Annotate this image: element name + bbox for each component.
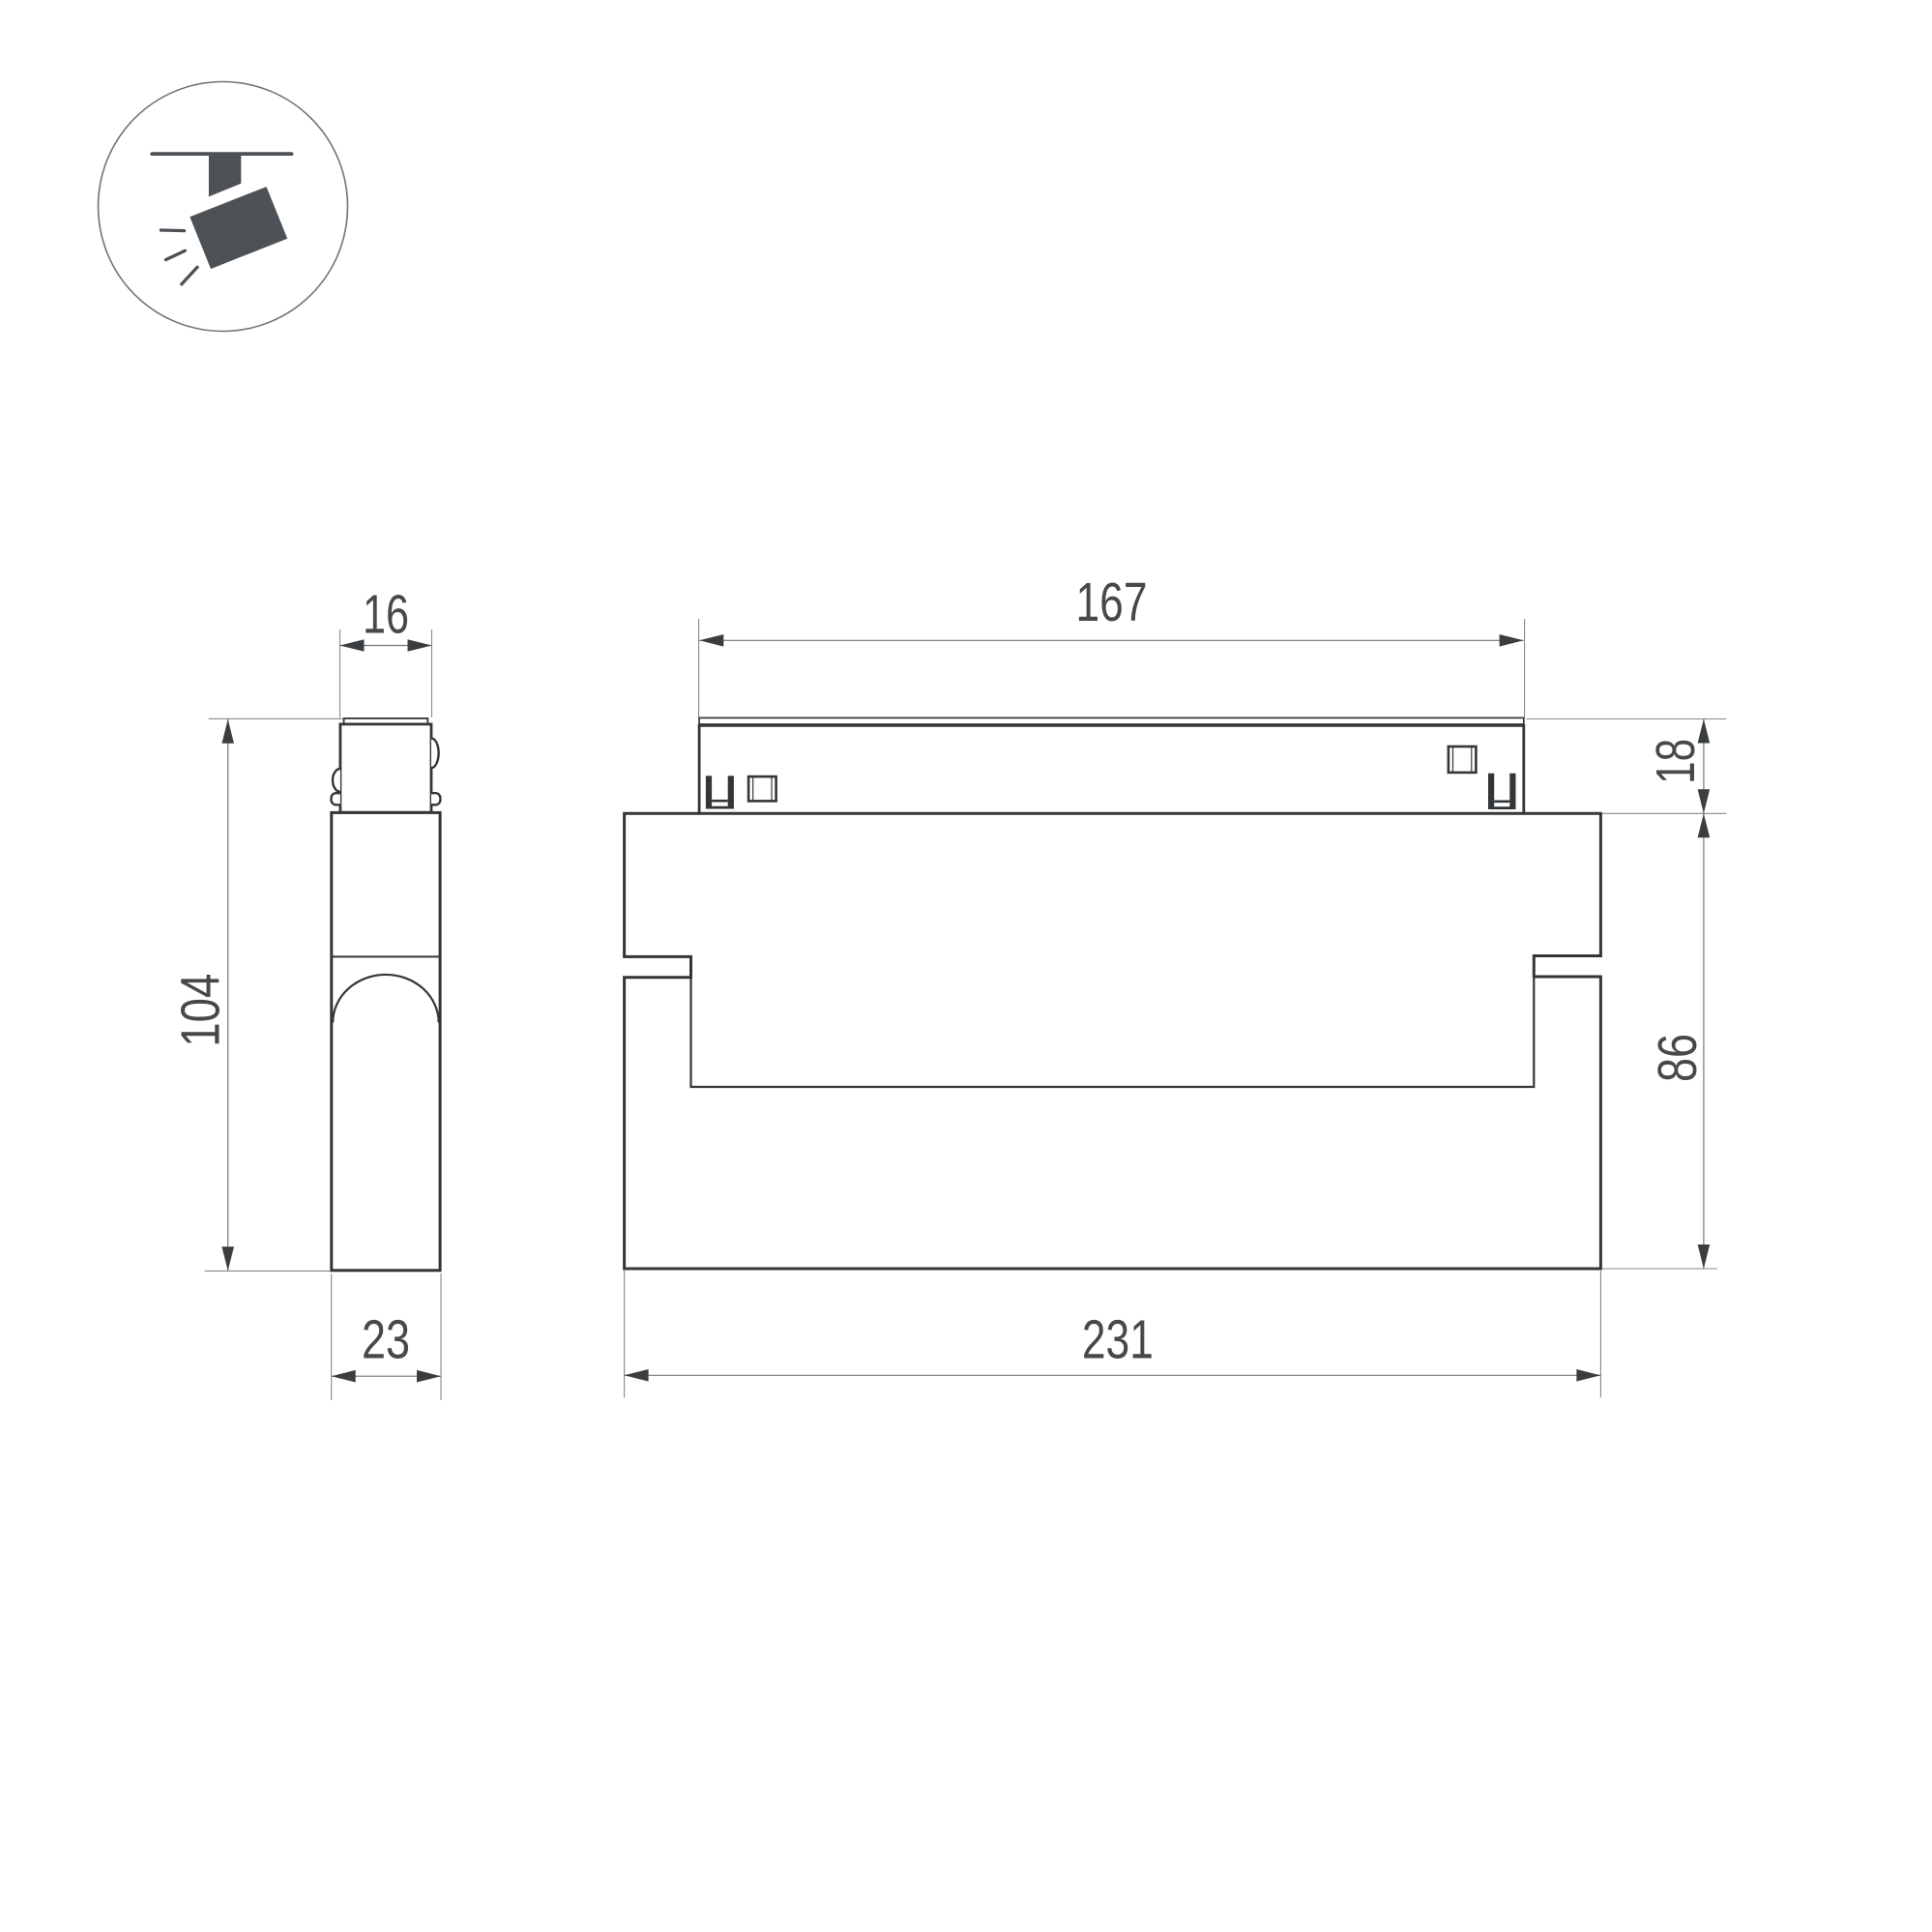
svg-text:86: 86 <box>1647 1034 1709 1082</box>
svg-text:104: 104 <box>169 974 231 1047</box>
svg-text:23: 23 <box>362 1309 410 1371</box>
svg-text:16: 16 <box>363 583 409 645</box>
svg-text:167: 167 <box>1076 571 1148 633</box>
svg-text:231: 231 <box>1082 1309 1154 1371</box>
svg-text:18: 18 <box>1645 739 1707 784</box>
